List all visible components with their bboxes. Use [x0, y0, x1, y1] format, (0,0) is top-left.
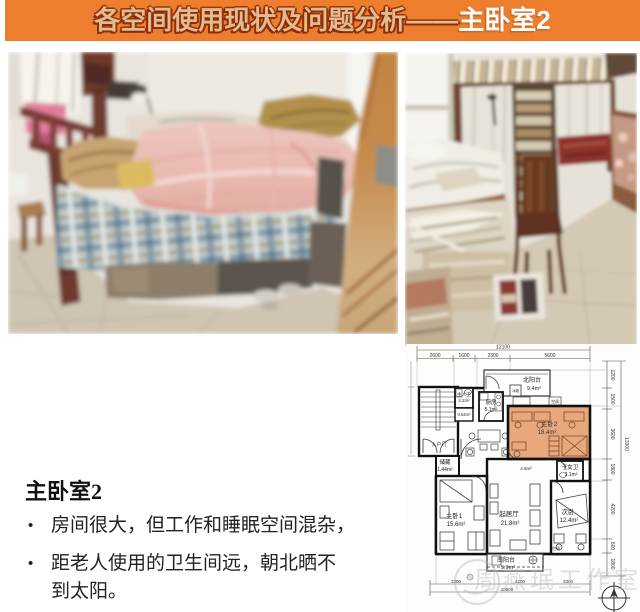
svg-text:起居厅: 起居厅: [499, 510, 519, 518]
svg-text:5600: 5600: [544, 353, 555, 359]
svg-text:主人卫: 主人卫: [457, 391, 471, 397]
svg-text:9.4m²: 9.4m²: [527, 386, 541, 392]
svg-text:18.4m²: 18.4m²: [538, 430, 557, 436]
svg-text:1800: 1800: [609, 463, 615, 474]
svg-text:空调: 空调: [552, 545, 560, 551]
svg-text:周燕珉工作室: 周燕珉工作室: [474, 567, 640, 594]
svg-text:冰箱: 冰箱: [512, 388, 520, 393]
svg-text:1600: 1600: [458, 353, 469, 359]
svg-text:13300: 13300: [623, 437, 629, 451]
svg-text:600: 600: [609, 542, 615, 551]
svg-text:2300: 2300: [487, 353, 498, 359]
svg-text:入户门: 入户门: [431, 441, 446, 448]
svg-text:2600: 2600: [429, 353, 440, 359]
svg-text:北阳台: 北阳台: [523, 376, 541, 384]
svg-text:5.1m²: 5.1m²: [485, 407, 498, 413]
svg-text:4.6m²: 4.6m²: [520, 466, 532, 471]
svg-text:12100: 12100: [496, 345, 510, 351]
svg-text:12.4m²: 12.4m²: [560, 518, 579, 524]
svg-text:空调: 空调: [551, 399, 559, 404]
svg-text:1500: 1500: [609, 393, 615, 404]
svg-text:0.54m²: 0.54m²: [457, 412, 471, 417]
svg-text:南阳台: 南阳台: [497, 556, 515, 564]
svg-text:1.44m²: 1.44m²: [437, 467, 453, 473]
svg-text:4200: 4200: [609, 503, 615, 514]
svg-text:3600: 3600: [609, 428, 615, 439]
svg-text:2.2m²: 2.2m²: [458, 398, 470, 403]
svg-text:储藏: 储藏: [439, 458, 451, 466]
svg-text:21.8m²: 21.8m²: [501, 521, 520, 527]
svg-text:1200: 1200: [609, 369, 615, 380]
svg-text:3300: 3300: [451, 579, 462, 584]
svg-text:主卧1: 主卧1: [446, 511, 463, 520]
svg-text:主卧2: 主卧2: [541, 419, 558, 428]
svg-text:15.6m²: 15.6m²: [447, 522, 466, 528]
